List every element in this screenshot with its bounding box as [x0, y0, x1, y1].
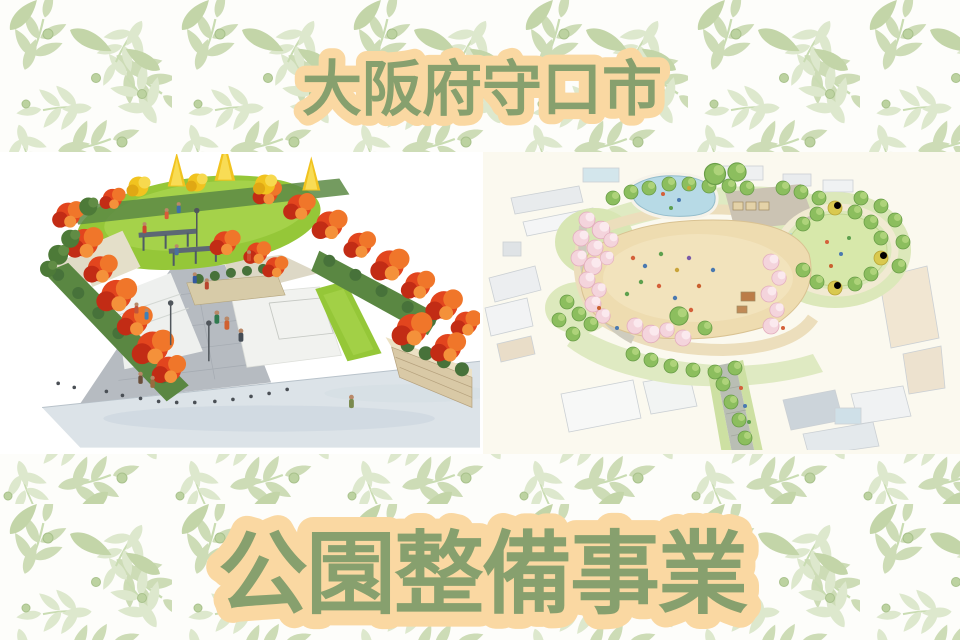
- right-park-illustration: [483, 158, 960, 450]
- top-title-block: 大阪府守口市: [0, 8, 960, 158]
- bottom-title-block: 公園整備事業: [0, 468, 960, 640]
- top-title: 大阪府守口市: [302, 55, 662, 125]
- illustration-band: [0, 152, 960, 454]
- banner: 大阪府守口市 公園整備事業: [0, 0, 960, 640]
- left-park-illustration: [18, 154, 480, 448]
- bottom-title: 公園整備事業: [218, 522, 748, 627]
